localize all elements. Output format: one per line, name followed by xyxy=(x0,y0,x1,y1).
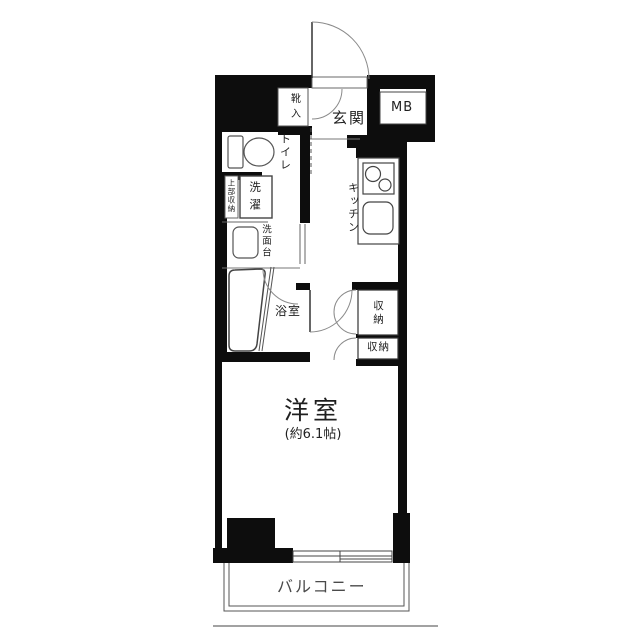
sink-icon xyxy=(363,202,393,234)
label-western-room-size: (約6.1帖) xyxy=(270,428,356,442)
storage-door-arcs xyxy=(334,290,356,360)
label-balcony: バルコニー xyxy=(277,579,367,596)
floorplan-canvas: 靴入 玄関 MB トイレ 上部収納 洗濯 洗面台 浴室 キッチン 収納 収納 洋… xyxy=(0,0,640,640)
label-toilet: トイレ xyxy=(279,133,291,172)
floorplan-drawing xyxy=(0,0,640,640)
label-laundry: 洗濯 xyxy=(249,181,261,216)
bathtub-icon xyxy=(229,269,265,351)
label-meter-box: MB xyxy=(391,101,413,115)
label-storage-upper: 収納 xyxy=(372,300,383,327)
label-bathroom: 浴室 xyxy=(275,305,301,318)
balcony-window xyxy=(293,551,392,562)
label-washstand: 洗面台 xyxy=(260,224,270,259)
washstand-icon xyxy=(233,227,258,258)
room-door xyxy=(310,290,352,332)
entrance-threshold xyxy=(312,77,367,88)
stove-icon xyxy=(363,163,394,194)
label-shoe-cabinet: 靴入 xyxy=(288,93,299,123)
label-western-room: 洋室 xyxy=(281,398,345,424)
genkan-step-line xyxy=(310,128,360,174)
label-entrance: 玄関 xyxy=(332,111,366,127)
washroom-door xyxy=(300,224,305,264)
toilet-icon xyxy=(228,136,274,168)
entrance-door-arc xyxy=(312,22,369,119)
label-upper-shelf: 上部収納 xyxy=(227,179,235,213)
label-kitchen: キッチン xyxy=(347,182,359,234)
label-storage-lower: 収納 xyxy=(367,342,390,353)
